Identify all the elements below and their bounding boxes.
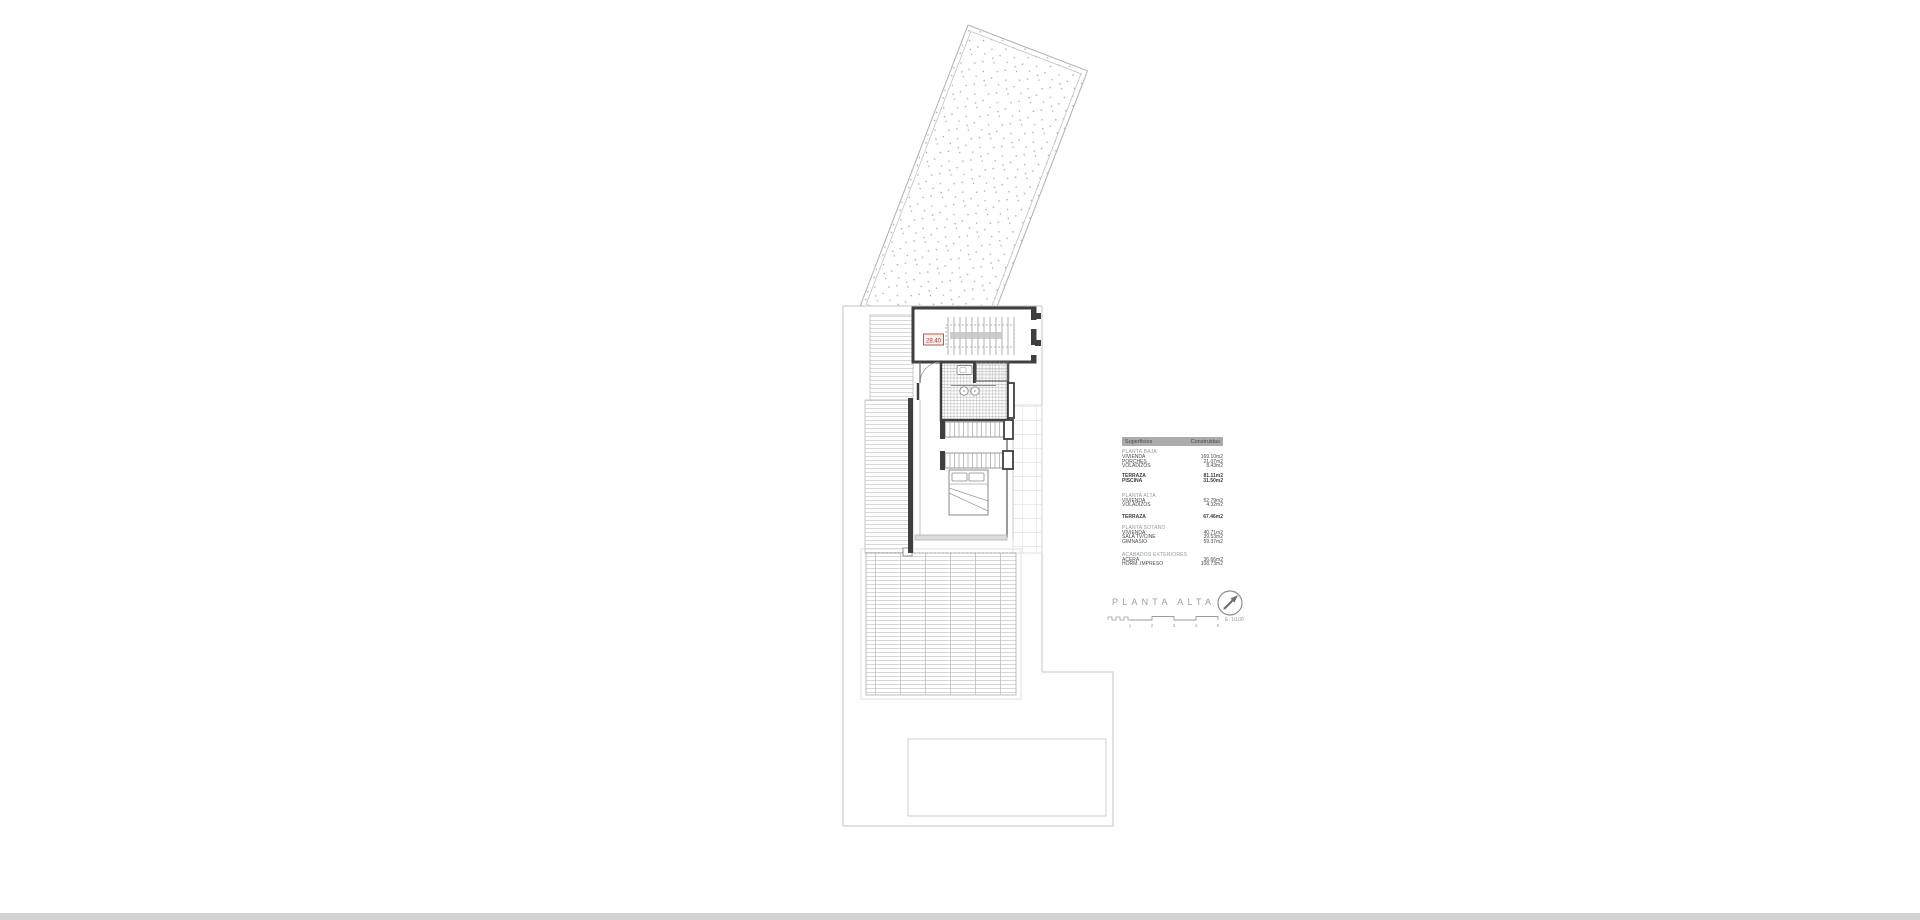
row-value: 8.43m2 — [1206, 464, 1223, 469]
wall-pier — [1008, 383, 1014, 418]
scale-tick: 4 — [1195, 623, 1198, 628]
row-label: VOLADIZOS — [1122, 503, 1151, 508]
deck-strip-upper — [870, 315, 913, 400]
areas-table: Superficies Construidas PLANTA BAJA VIVI… — [1122, 437, 1223, 567]
dimension-text: 28.40 — [926, 339, 942, 345]
dimension-label: 28.40 — [924, 334, 944, 345]
row-value: 67.46m2 — [1203, 515, 1223, 520]
pool-outline — [908, 739, 1106, 816]
row-label: VOLADIZOS — [1122, 464, 1151, 469]
deck-strip-lower — [865, 400, 913, 553]
bathroom — [941, 362, 1008, 420]
south-low-wall — [915, 535, 1007, 540]
row-value: 59.37m2 — [1204, 540, 1223, 545]
row-label: GIMNASIO — [1122, 540, 1147, 545]
section-planta-sotano: PLANTA SOTANO VIVIENDA40.71m2 SALA TV/CI… — [1122, 526, 1223, 545]
table-row: VOLADIZOS4.32m2 — [1122, 503, 1223, 508]
section-acabados-exteriores: ACABADOS EXTERIORES ACERA36.66m2 HORM. I… — [1122, 553, 1223, 567]
floor-plan-page: 28.40 — [0, 0, 1920, 920]
plan-title: PLANTA ALTA — [1112, 597, 1215, 607]
section-planta-baja: PLANTA BAJA VIVIENDA169.10m2 PORCHES21.0… — [1122, 450, 1223, 469]
header-col-construidas: Construidas — [1191, 439, 1220, 445]
wardrobe-band-2 — [940, 451, 1013, 470]
row-value: 108.73m2 — [1201, 562, 1223, 567]
areas-table-header: Superficies Construidas — [1122, 437, 1223, 446]
section-planta-alta: PLANTA ALTA VIVIENDA52.79m2 VOLADIZOS4.3… — [1122, 494, 1223, 508]
bottom-edge-bar — [0, 913, 1920, 920]
table-row: VOLADIZOS8.43m2 — [1122, 464, 1223, 469]
row-label: TERRAZA — [1122, 515, 1146, 520]
row-label: PISCINA — [1122, 479, 1142, 484]
table-row: GIMNASIO59.37m2 — [1122, 540, 1223, 545]
scale-tick: 2 — [1151, 623, 1154, 628]
south-terrace-deck — [861, 548, 1021, 699]
scale-bar: 1 2 3 4 5 E: 1/100 — [1106, 611, 1258, 629]
bed-icon — [949, 470, 988, 515]
dressing-area — [976, 362, 1008, 381]
scale-tick: 3 — [1173, 623, 1176, 628]
gravel-driveway — [860, 25, 1087, 351]
wardrobe-band-1 — [940, 420, 1013, 439]
west-wall — [908, 398, 913, 553]
section-terraza-piscina: TERRAZA81.11m2 PISCINA31.50m2 — [1122, 474, 1223, 483]
paving-grid — [1013, 405, 1042, 553]
table-row: HORM. IMPRESO108.73m2 — [1122, 562, 1223, 567]
floor-plan-drawing: 28.40 — [0, 0, 1920, 920]
table-row: TERRAZA67.46m2 — [1122, 515, 1223, 520]
header-col-superficies: Superficies — [1125, 439, 1152, 445]
table-row: PISCINA31.50m2 — [1122, 479, 1223, 484]
scale-tick: 1 — [1129, 623, 1132, 628]
row-value: 4.32m2 — [1206, 503, 1223, 508]
row-value: 31.50m2 — [1203, 479, 1223, 484]
row-label: HORM. IMPRESO — [1122, 562, 1163, 567]
scale-tick: 5 — [1217, 623, 1220, 628]
scale-label: E: 1/100 — [1225, 617, 1244, 623]
section-terraza-alta: TERRAZA67.46m2 — [1122, 515, 1223, 520]
